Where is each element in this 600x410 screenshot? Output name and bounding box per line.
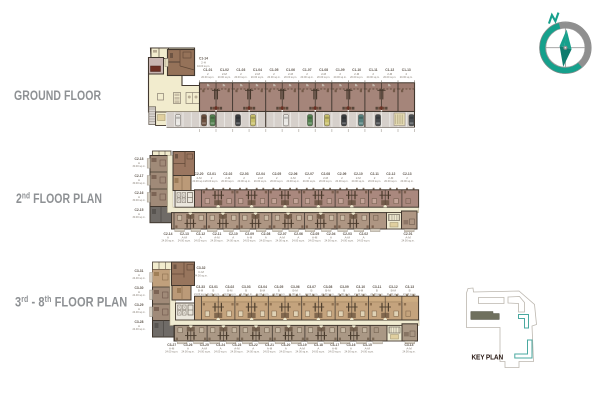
- svg-text:24.00 sq.m.: 24.00 sq.m.: [401, 240, 414, 243]
- svg-text:24.00 sq.m.: 24.00 sq.m.: [132, 328, 145, 331]
- svg-text:24.00 sq.m.: 24.00 sq.m.: [132, 277, 145, 280]
- svg-text:24.00 sq.m.: 24.00 sq.m.: [402, 351, 415, 354]
- svg-text:20.00 sq.m.20.00 sq.m.20.00 sq: 20.00 sq.m.20.00 sq.m.20.00 sq.m.20.00 s…: [192, 180, 413, 183]
- svg-text:44.00 sq.m.: 44.00 sq.m.: [194, 274, 207, 277]
- svg-text:2nd FLOOR PLAN: 2nd FLOOR PLAN: [16, 190, 102, 206]
- svg-text:30.00 sq.m.: 30.00 sq.m.: [132, 216, 145, 219]
- svg-text:24.00 sq.m.24.00 sq.m.24.00 sq: 24.00 sq.m.24.00 sq.m.24.00 sq.m.24.00 s…: [161, 240, 370, 243]
- svg-text:21.00 sq.m.21.00 sq.m.21.00 sq: 21.00 sq.m.21.00 sq.m.21.00 sq.m.21.00 s…: [194, 293, 416, 296]
- svg-text:KEY PLAN: KEY PLAN: [472, 353, 504, 362]
- svg-text:2-H: 2-H: [201, 60, 206, 64]
- svg-text:30.00 sq.m.: 30.00 sq.m.: [132, 182, 145, 185]
- svg-text:30.00 sq.m.: 30.00 sq.m.: [132, 165, 145, 168]
- svg-text:24.00 sq.m.24.00 sq.m.24.00 sq: 24.00 sq.m.24.00 sq.m.24.00 sq.m.24.00 s…: [165, 351, 374, 354]
- svg-text:20.00 sq.m.20.00 sq.m.20.00 sq: 20.00 sq.m.20.00 sq.m.20.00 sq.m.20.00 s…: [201, 76, 413, 79]
- svg-text:GROUND FLOOR: GROUND FLOOR: [14, 88, 101, 104]
- svg-text:24.00 sq.m.: 24.00 sq.m.: [132, 294, 145, 297]
- svg-text:30.00 sq.m.: 30.00 sq.m.: [132, 199, 145, 202]
- svg-text:3rd - 8th FLOOR PLAN: 3rd - 8th FLOOR PLAN: [15, 294, 127, 310]
- svg-text:24.00 sq.m.: 24.00 sq.m.: [132, 311, 145, 314]
- svg-text:C-M: C-M: [198, 270, 204, 274]
